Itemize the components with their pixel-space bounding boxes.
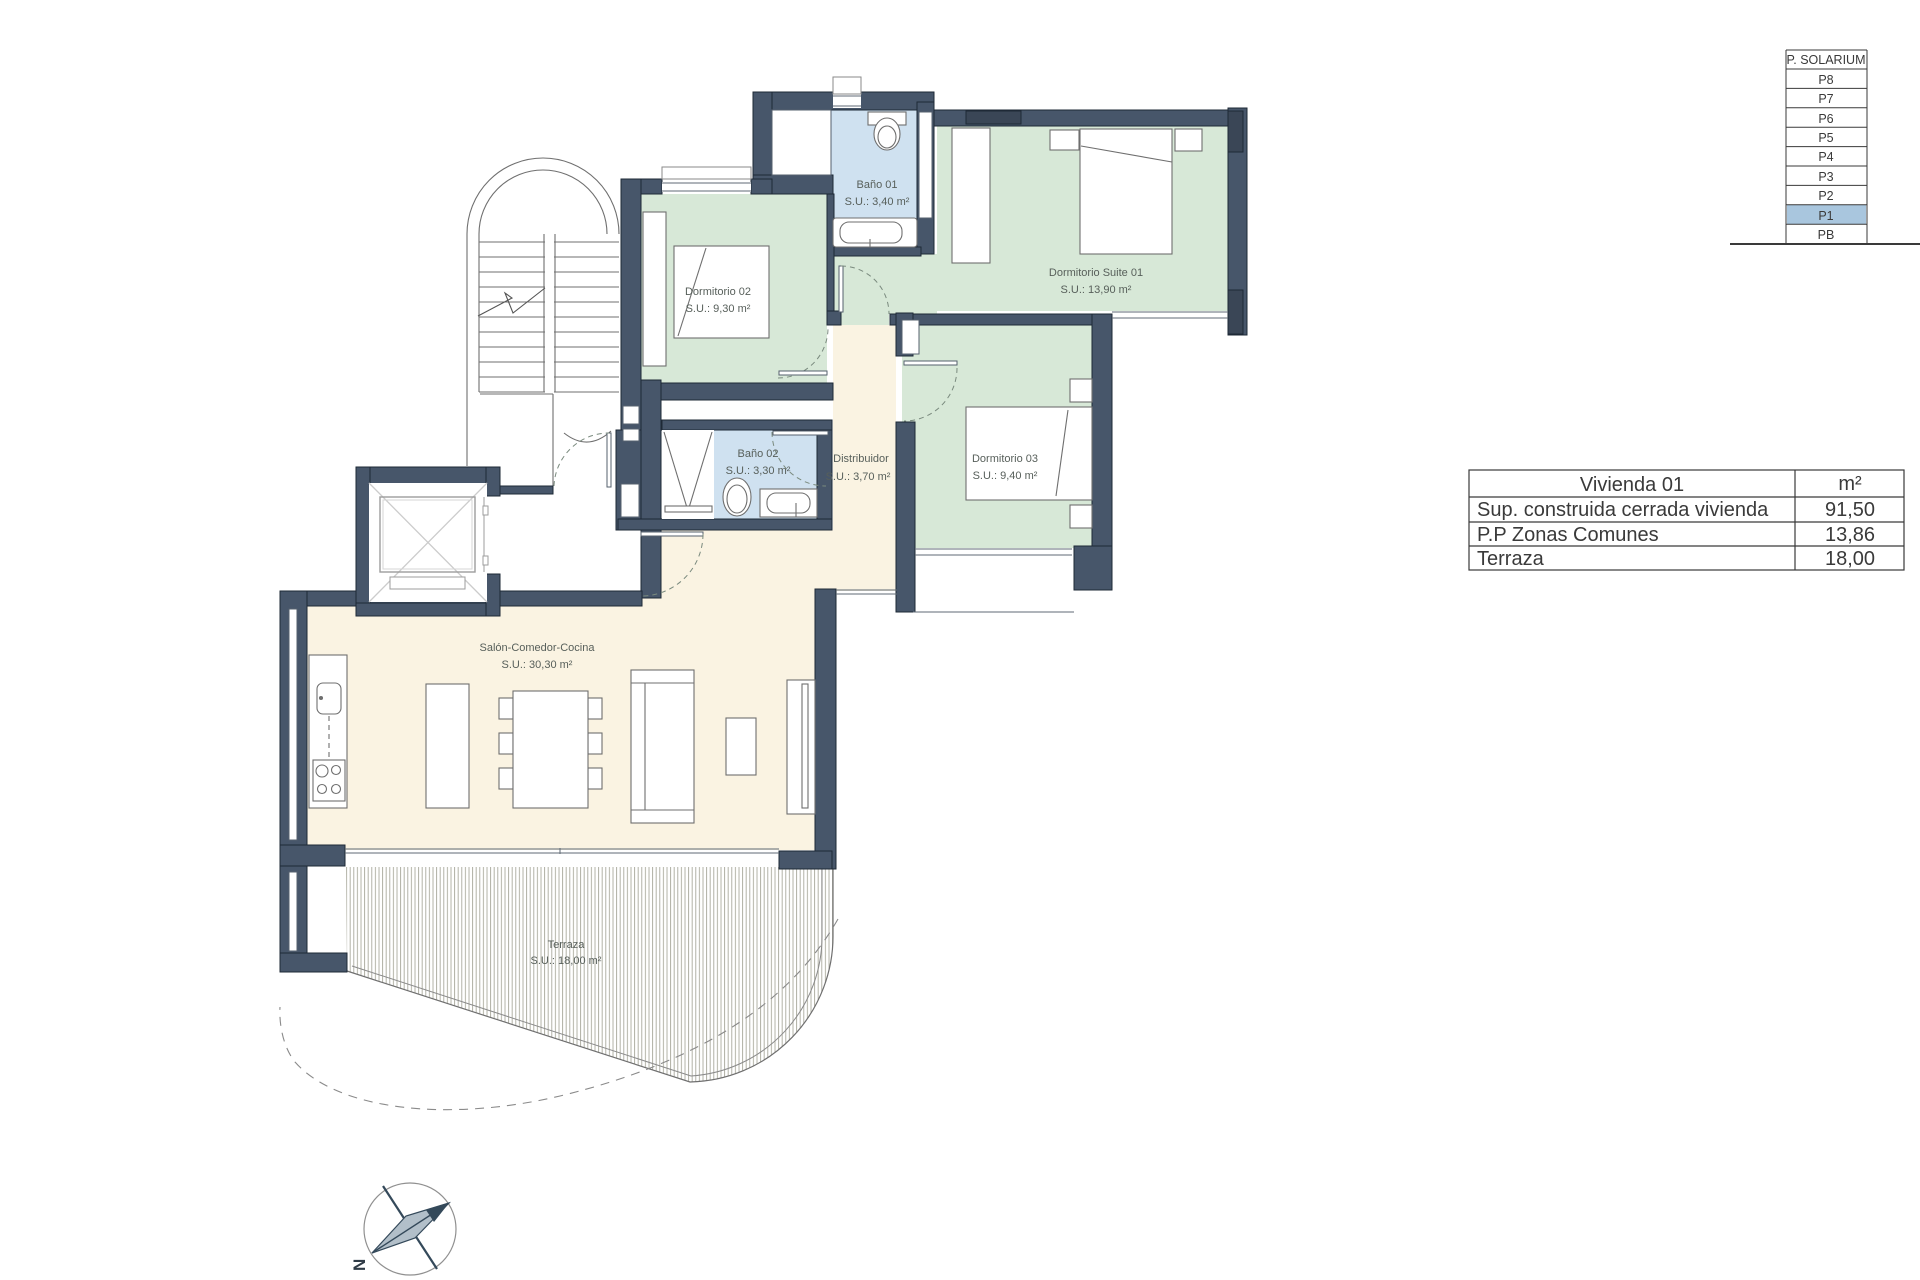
svg-text:Baño 02: Baño 02 [738,448,779,460]
svg-text:P7: P7 [1818,92,1833,106]
svg-text:P6: P6 [1818,112,1833,126]
svg-text:S.U.: 13,90 m²: S.U.: 13,90 m² [1061,284,1132,296]
svg-text:91,50: 91,50 [1825,499,1875,521]
svg-text:P1: P1 [1818,209,1833,223]
svg-text:P.P Zonas Comunes: P.P Zonas Comunes [1477,524,1659,546]
svg-text:P3: P3 [1818,170,1833,184]
svg-text:Sup. construida cerrada vivien: Sup. construida cerrada vivienda [1477,499,1769,521]
svg-text:S.U.: 9,30 m²: S.U.: 9,30 m² [686,303,751,315]
svg-text:Dormitorio 03: Dormitorio 03 [972,453,1038,465]
svg-text:S.U.: 3,30 m²: S.U.: 3,30 m² [726,465,791,477]
svg-text:N: N [350,1259,369,1271]
svg-text:S.U.: 18,00 m²: S.U.: 18,00 m² [531,955,602,967]
svg-text:P5: P5 [1818,131,1833,145]
svg-text:13,86: 13,86 [1825,524,1875,546]
svg-text:Vivienda 01: Vivienda 01 [1580,474,1684,496]
svg-text:Dormitorio 02: Dormitorio 02 [685,286,751,298]
svg-text:Terraza: Terraza [548,939,586,951]
svg-text:Salón-Comedor-Cocina: Salón-Comedor-Cocina [480,642,596,654]
svg-text:Distribuidor: Distribuidor [833,453,889,465]
svg-text:P8: P8 [1818,73,1833,87]
svg-text:P2: P2 [1818,189,1833,203]
svg-text:S.U.: 3,40 m²: S.U.: 3,40 m² [845,196,910,208]
svg-text:S.U.: 9,40 m²: S.U.: 9,40 m² [973,470,1038,482]
svg-text:Baño 01: Baño 01 [857,179,898,191]
svg-text:m²: m² [1838,473,1862,495]
svg-text:P. SOLARIUM: P. SOLARIUM [1787,53,1866,67]
svg-text:S.U.: 3,70 m²: S.U.: 3,70 m² [826,471,891,483]
svg-text:PB: PB [1818,228,1835,242]
svg-text:Terraza: Terraza [1477,548,1545,570]
svg-text:Dormitorio Suite 01: Dormitorio Suite 01 [1049,267,1143,279]
svg-text:S.U.: 30,30 m²: S.U.: 30,30 m² [502,659,573,671]
svg-text:18,00: 18,00 [1825,548,1875,570]
svg-text:P4: P4 [1818,150,1833,164]
